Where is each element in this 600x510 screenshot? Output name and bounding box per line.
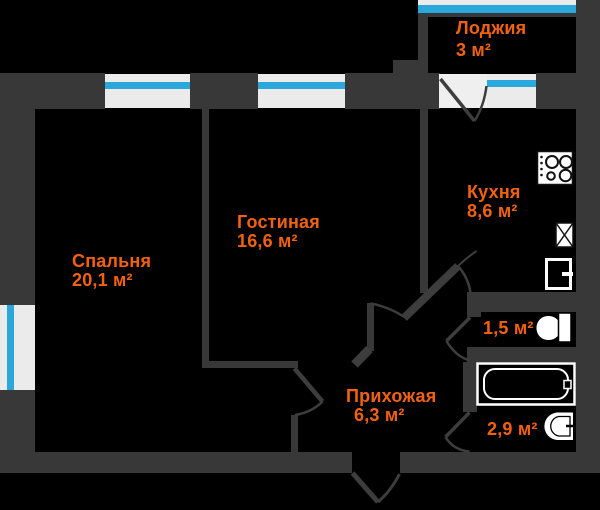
room-name: Кухня <box>467 183 521 202</box>
wall <box>0 390 35 452</box>
wall <box>0 452 352 473</box>
bedroom-door-swing <box>295 369 323 416</box>
room-area: 2,9 м² <box>487 420 538 439</box>
room-label-living: Гостиная 16,6 м² <box>237 213 320 251</box>
room-name: Спальня <box>72 252 151 271</box>
room-name: Лоджия <box>456 17 526 39</box>
room-label-hall: Прихожая 6,3 м² <box>346 387 436 425</box>
balcony-door-opening <box>439 74 487 108</box>
stove-icon <box>538 152 573 185</box>
wall <box>467 347 576 362</box>
wall <box>190 73 258 109</box>
room-area: 6,3 м² <box>346 406 436 425</box>
kitchen-door-swing <box>404 251 477 318</box>
floor-plan: Лоджия 3 м² Кухня 8,6 м² Гостиная 16,6 м… <box>0 0 600 510</box>
wall <box>367 303 374 351</box>
wall <box>536 73 576 109</box>
window <box>418 0 576 13</box>
bath-door-swing <box>446 413 470 452</box>
wall <box>467 292 576 312</box>
wall <box>467 292 481 317</box>
wall <box>393 60 420 74</box>
wall <box>576 0 600 473</box>
fridge-icon <box>547 260 574 289</box>
window <box>105 74 190 108</box>
room-area: 1,5 м² <box>483 319 534 338</box>
wall <box>420 109 428 293</box>
bathtub-icon <box>478 364 575 405</box>
window-glass <box>7 305 14 390</box>
window <box>487 74 536 108</box>
window-glass <box>258 82 345 89</box>
room-area: 8,6 м² <box>467 202 521 221</box>
room-label-bath: 2,9 м² <box>487 420 538 439</box>
wall <box>463 362 477 412</box>
room-area: 3 м² <box>456 39 526 61</box>
room-label-loggia: Лоджия 3 м² <box>456 17 526 61</box>
window <box>0 305 35 390</box>
room-name: Прихожая <box>346 387 436 406</box>
wall <box>291 415 298 452</box>
room-label-bedroom: Спальня 20,1 м² <box>72 252 151 290</box>
wall <box>202 361 298 368</box>
room-label-kitchen: Кухня 8,6 м² <box>467 183 521 221</box>
window-glass <box>487 80 536 87</box>
washbasin-icon <box>544 413 573 441</box>
window-glass <box>105 82 190 89</box>
sink-icon <box>556 223 573 247</box>
wall <box>400 452 576 473</box>
toilet-icon <box>537 313 572 342</box>
room-name: Гостиная <box>237 213 320 232</box>
wall <box>202 109 209 362</box>
living-door-swing <box>355 304 405 365</box>
room-area: 16,6 м² <box>237 232 320 251</box>
room-label-wc: 1,5 м² <box>483 319 534 338</box>
room-area: 20,1 м² <box>72 271 151 290</box>
wall <box>0 73 35 305</box>
window <box>258 74 345 108</box>
entrance-door-swing <box>353 473 400 502</box>
wall <box>345 73 440 109</box>
window-glass <box>418 5 576 13</box>
